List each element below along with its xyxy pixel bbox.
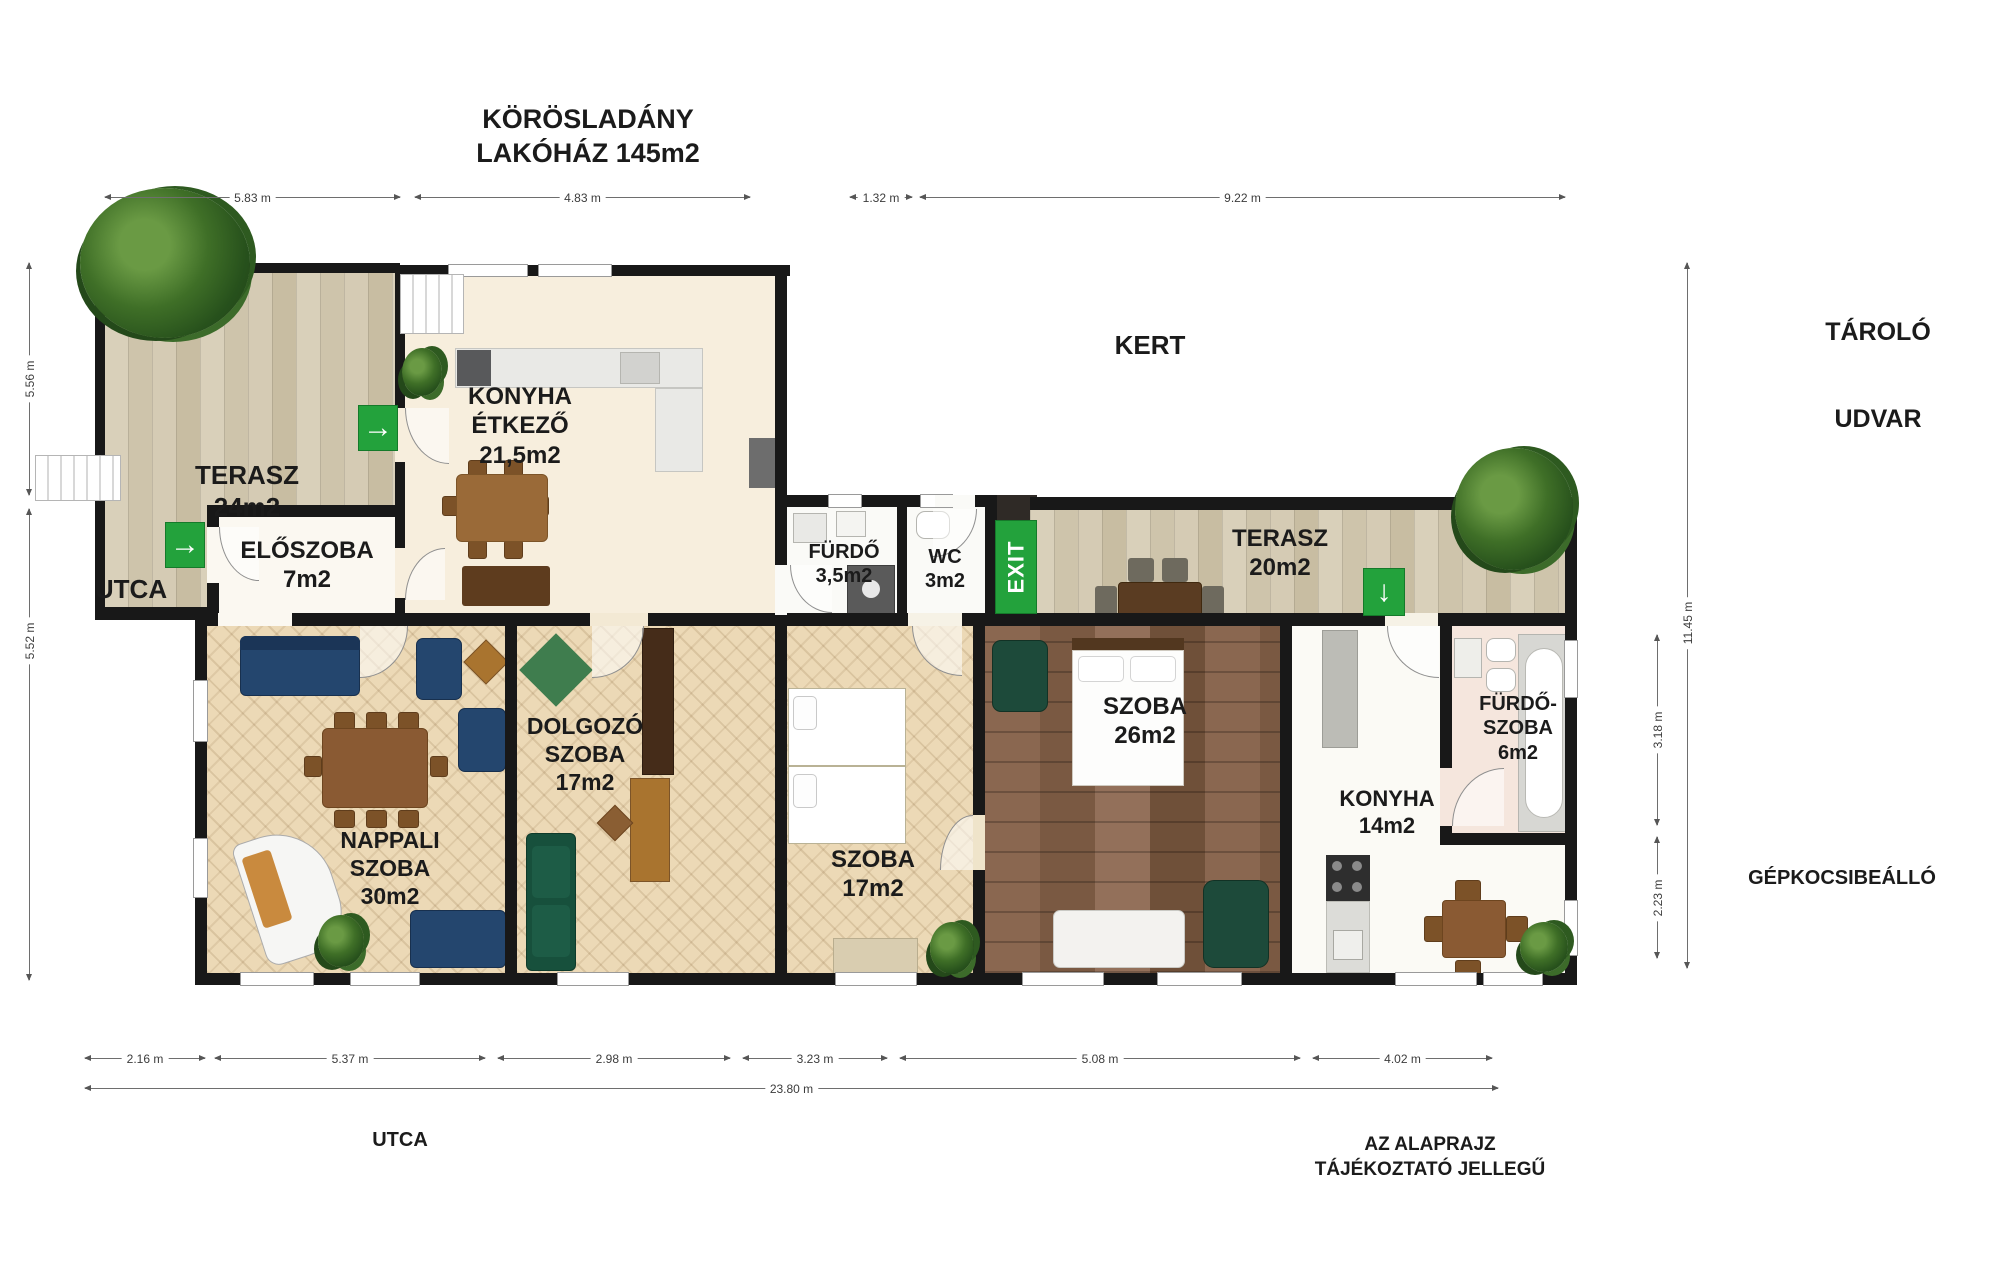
door-gap xyxy=(973,815,985,870)
bench xyxy=(833,938,918,974)
washing-machine xyxy=(793,513,827,543)
toilet xyxy=(1486,638,1516,662)
plant-icon xyxy=(930,922,974,974)
door-gap xyxy=(775,565,787,615)
label-tarolo: TÁROLÓ xyxy=(1778,317,1978,348)
wall xyxy=(195,613,207,985)
dim-line-right-1: 11.45 m xyxy=(1687,263,1688,968)
window xyxy=(557,972,629,986)
kitchen-table xyxy=(1442,900,1506,958)
exit-text: EXIT xyxy=(1003,541,1029,594)
window xyxy=(1395,972,1477,986)
door-gap xyxy=(590,613,648,626)
arrow-glyph: → xyxy=(363,411,393,445)
sofa-back xyxy=(240,636,360,650)
dining-chair xyxy=(430,756,448,777)
label-utca-bottom: UTCA xyxy=(300,1128,500,1152)
bathroom-sink xyxy=(836,511,866,537)
dim-line-bottom-3: 2.98 m xyxy=(498,1058,730,1059)
stove-icon xyxy=(457,350,491,386)
window xyxy=(1157,972,1242,986)
bathroom-sink xyxy=(1454,638,1482,678)
dim-line-left-2: 5.52 m xyxy=(29,509,30,980)
dim-line-right-2: 3.18 m xyxy=(1657,635,1658,825)
title-line1: KÖRÖSLADÁNY xyxy=(388,103,788,137)
plant-icon xyxy=(1455,448,1573,570)
green-sofa-cushion xyxy=(532,846,570,898)
pillow xyxy=(793,696,817,730)
plant-icon xyxy=(80,188,250,338)
dim-line-bottom-6: 4.02 m xyxy=(1313,1058,1492,1059)
room-label-nappali: NAPPALI SZOBA 30m2 xyxy=(290,826,490,910)
window xyxy=(350,972,420,986)
title-line2: LAKÓHÁZ 145m2 xyxy=(388,137,788,171)
room-label-szoba-17: SZOBA17m2 xyxy=(773,845,973,904)
plant-icon xyxy=(1520,922,1568,972)
window xyxy=(240,972,314,986)
burner xyxy=(1332,861,1342,871)
room-label-konyha-14: KONYHA14m2 xyxy=(1287,786,1487,840)
plant-icon xyxy=(318,915,364,967)
dim-line-bottom-total: 23.80 m xyxy=(85,1088,1498,1089)
room-label-furdoszoba-6: FÜRDŐ- SZOBA 6m2 xyxy=(1440,692,1596,765)
door-gap xyxy=(218,613,292,626)
window xyxy=(538,264,612,277)
armchair-green xyxy=(992,640,1048,712)
window xyxy=(193,680,208,742)
room-label-dolgozo: DOLGOZÓ SZOBA 17m2 xyxy=(485,712,685,796)
patio-chair xyxy=(1128,558,1154,582)
room-label-terasz-20: TERASZ20m2 xyxy=(1180,524,1380,583)
arrow-glyph: → xyxy=(170,528,200,562)
dining-chair xyxy=(468,540,487,559)
exit-arrow-right-icon: → xyxy=(165,522,205,568)
stairs xyxy=(35,455,121,501)
label-udvar: UDVAR xyxy=(1778,404,1978,435)
room-label-konyha-etkezo: KONYHA ÉTKEZŐ 21,5m2 xyxy=(420,382,620,470)
sideboard xyxy=(462,566,550,606)
dining-chair xyxy=(504,540,523,559)
label-gepkocsibeallo: GÉPKOCSIBEÁLLÓ xyxy=(1712,866,1972,890)
dining-table xyxy=(456,474,548,542)
room-label-furdo: FÜRDŐ3,5m2 xyxy=(787,540,901,589)
page-title: KÖRÖSLADÁNY LAKÓHÁZ 145m2 xyxy=(388,103,788,171)
kitchen-chair xyxy=(1455,880,1481,902)
window xyxy=(193,838,208,898)
dim-line-bottom-5: 5.08 m xyxy=(900,1058,1300,1059)
living-table xyxy=(322,728,428,808)
pillow xyxy=(1078,656,1124,682)
green-sofa-cushion xyxy=(532,905,570,957)
label-utca-left: UTCA xyxy=(31,574,231,606)
room-label-eloszoba: ELŐSZOBA7m2 xyxy=(207,536,407,595)
dim-line-top-1: 5.83 m xyxy=(105,197,400,198)
burner xyxy=(1352,882,1362,892)
burner xyxy=(1352,861,1362,871)
window xyxy=(828,494,862,508)
sofa xyxy=(410,910,506,968)
white-sofa xyxy=(1053,910,1185,968)
window xyxy=(1022,972,1104,986)
label-kert: KERT xyxy=(1050,330,1250,362)
kitchen-counter-side xyxy=(655,388,703,472)
armchair xyxy=(416,638,462,700)
door-gap xyxy=(908,613,962,626)
dim-line-left-1: 5.56 m xyxy=(29,263,30,495)
door-gap xyxy=(935,495,975,507)
dim-line-top-2: 4.83 m xyxy=(415,197,750,198)
stairs xyxy=(400,274,464,334)
sink xyxy=(1333,930,1363,960)
window xyxy=(1564,640,1578,698)
pillow xyxy=(793,774,817,808)
dim-line-bottom-1: 2.16 m xyxy=(85,1058,205,1059)
armchair-green xyxy=(1203,880,1269,968)
burner xyxy=(1332,882,1342,892)
wall xyxy=(973,613,985,985)
window xyxy=(835,972,917,986)
exit-arrow-right-icon: → xyxy=(358,405,398,451)
bidet xyxy=(1486,668,1516,692)
dim-line-top-3: 1.32 m xyxy=(850,197,912,198)
dim-line-bottom-4: 3.23 m xyxy=(743,1058,887,1059)
wall xyxy=(95,263,105,620)
floor-plan-canvas: KÖRÖSLADÁNY LAKÓHÁZ 145m2 xyxy=(0,0,1991,1280)
dim-line-right-3: 2.23 m xyxy=(1657,837,1658,958)
pillow xyxy=(1130,656,1176,682)
dim-line-top-4: 9.22 m xyxy=(920,197,1565,198)
wall xyxy=(505,613,517,985)
cabinet xyxy=(1322,630,1358,748)
room-label-terasz-24: TERASZ24m2 xyxy=(147,460,347,523)
kitchen-sink xyxy=(620,352,660,384)
room-label-szoba-26: SZOBA26m2 xyxy=(1045,692,1245,751)
dim-line-bottom-2: 5.37 m xyxy=(215,1058,485,1059)
dining-chair xyxy=(304,756,322,777)
label-disclaimer: AZ ALAPRAJZ TÁJÉKOZTATÓ JELLEGŰ xyxy=(1280,1133,1580,1182)
exit-sign: EXIT xyxy=(995,520,1037,614)
window xyxy=(1483,972,1543,986)
room-label-wc: WC3m2 xyxy=(905,545,985,594)
fridge xyxy=(749,438,775,488)
